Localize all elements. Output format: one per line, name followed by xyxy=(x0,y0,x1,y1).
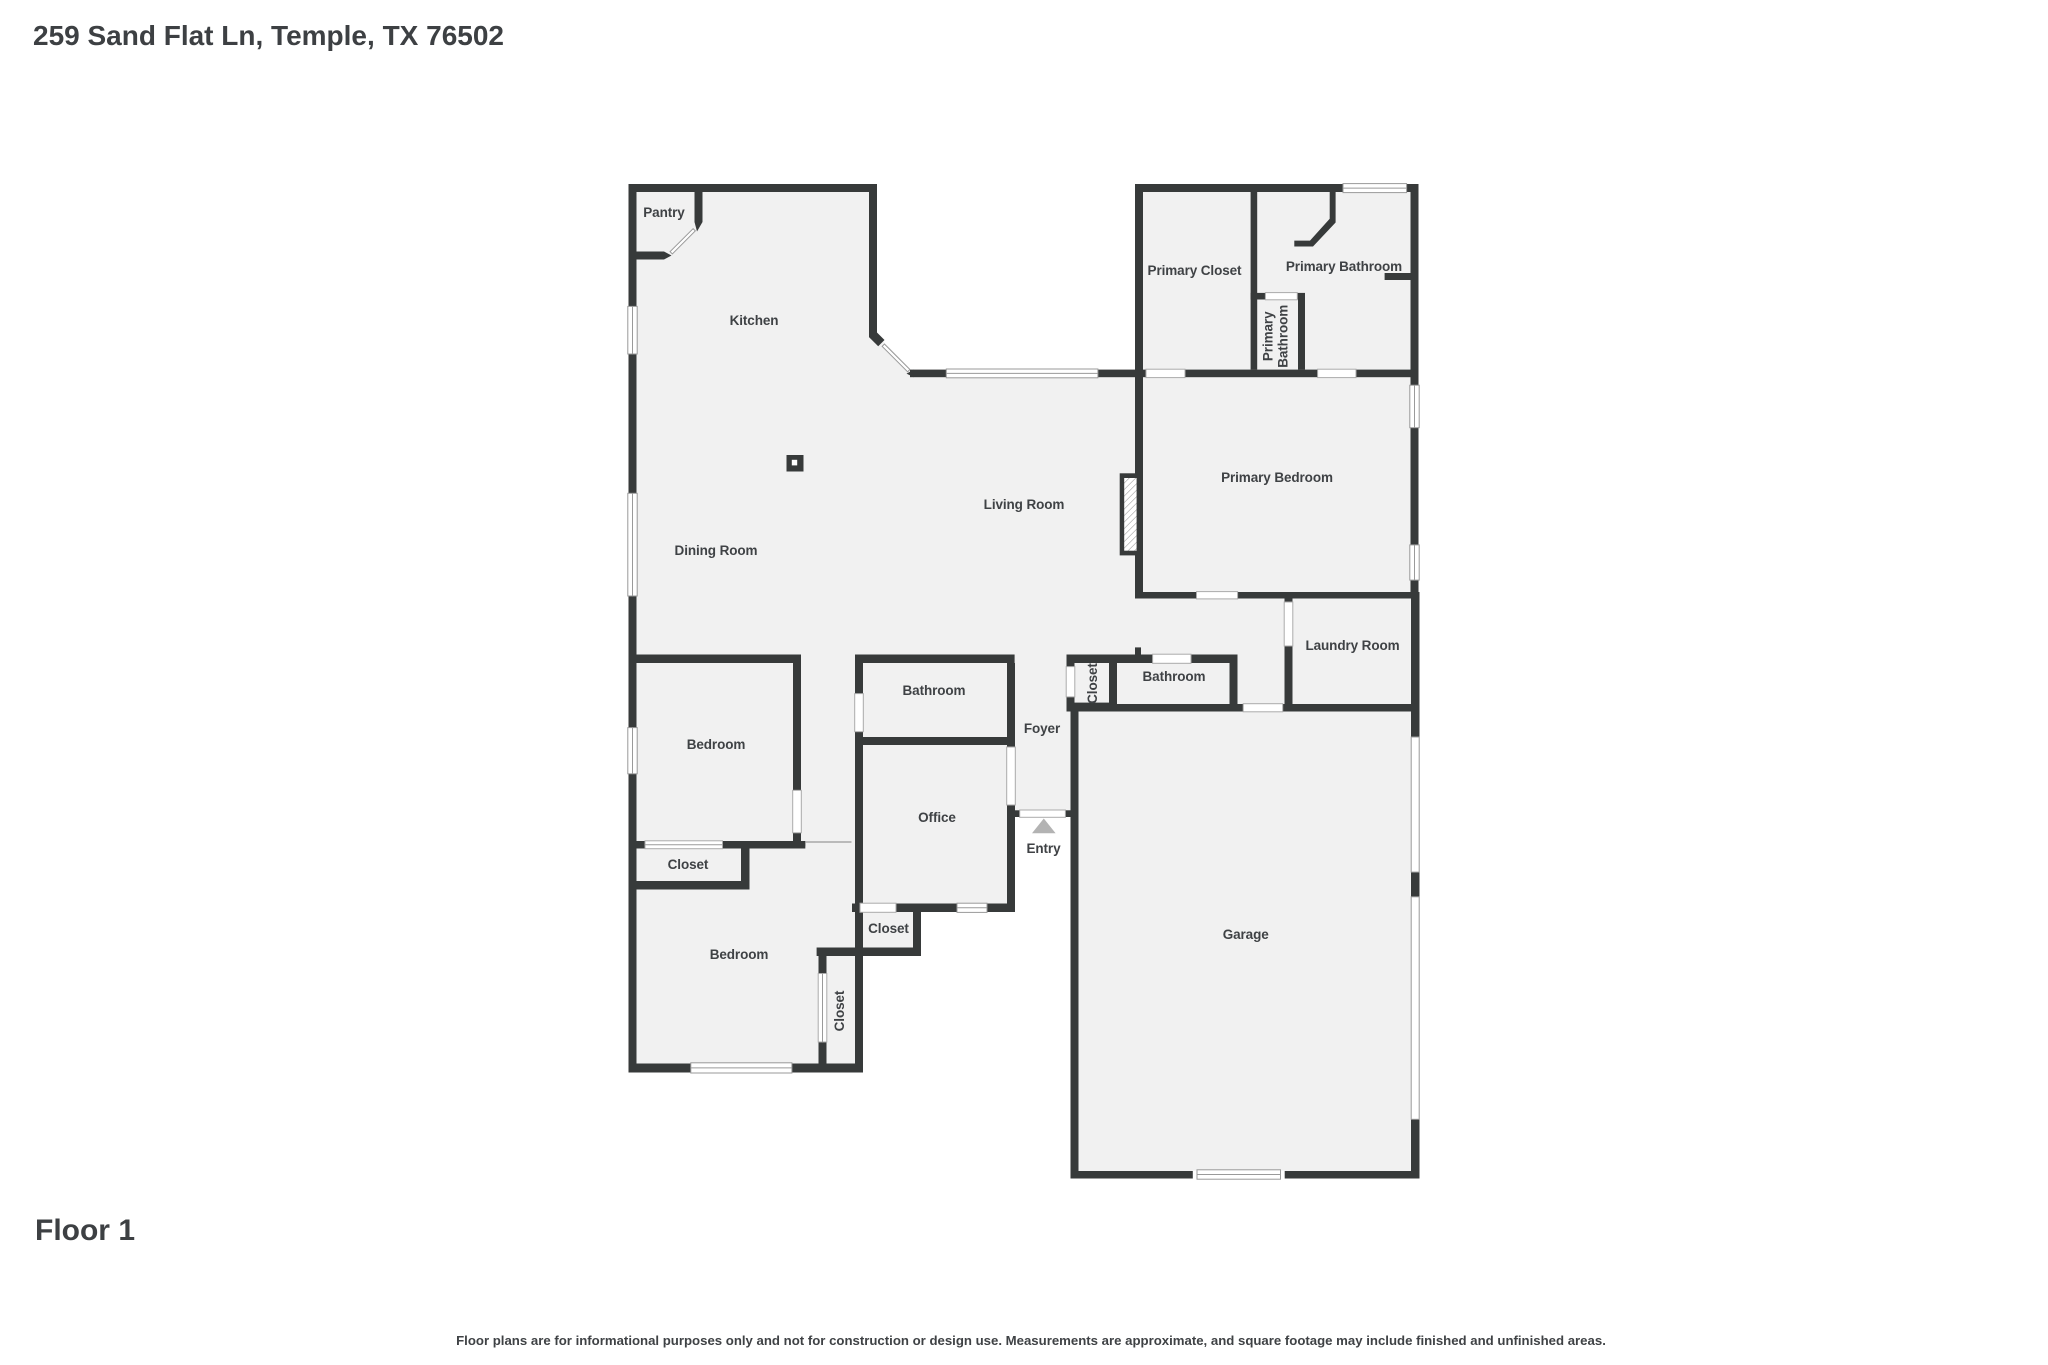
svg-text:Foyer: Foyer xyxy=(1024,721,1061,736)
svg-text:Closet: Closet xyxy=(668,857,709,872)
svg-text:Primary Closet: Primary Closet xyxy=(1148,263,1242,278)
svg-text:Bathroom: Bathroom xyxy=(1143,669,1206,684)
svg-text:259 Sand Flat Ln, Temple, TX 7: 259 Sand Flat Ln, Temple, TX 76502 xyxy=(33,20,504,51)
svg-text:Bedroom: Bedroom xyxy=(687,737,746,752)
svg-text:Bathroom: Bathroom xyxy=(903,683,966,698)
svg-text:Dining Room: Dining Room xyxy=(675,543,758,558)
svg-text:Kitchen: Kitchen xyxy=(730,313,779,328)
svg-text:Closet: Closet xyxy=(868,921,909,936)
svg-text:Floor plans are for informatio: Floor plans are for informational purpos… xyxy=(456,1333,1606,1348)
svg-text:Floor 1: Floor 1 xyxy=(35,1214,135,1247)
svg-text:Garage: Garage xyxy=(1223,927,1270,942)
svg-text:Closet: Closet xyxy=(832,990,847,1031)
svg-text:Primary Bathroom: Primary Bathroom xyxy=(1286,259,1402,274)
svg-text:Pantry: Pantry xyxy=(643,205,685,220)
svg-text:Laundry Room: Laundry Room xyxy=(1305,638,1399,653)
svg-text:Closet: Closet xyxy=(1085,663,1100,704)
svg-text:Living Room: Living Room xyxy=(984,497,1065,512)
svg-text:Primary Bedroom: Primary Bedroom xyxy=(1221,470,1333,485)
svg-text:Bathroom: Bathroom xyxy=(1276,305,1291,368)
svg-text:Office: Office xyxy=(918,810,956,825)
svg-text:Bedroom: Bedroom xyxy=(710,947,769,962)
svg-text:Entry: Entry xyxy=(1026,841,1061,856)
svg-text:Primary: Primary xyxy=(1260,311,1275,361)
